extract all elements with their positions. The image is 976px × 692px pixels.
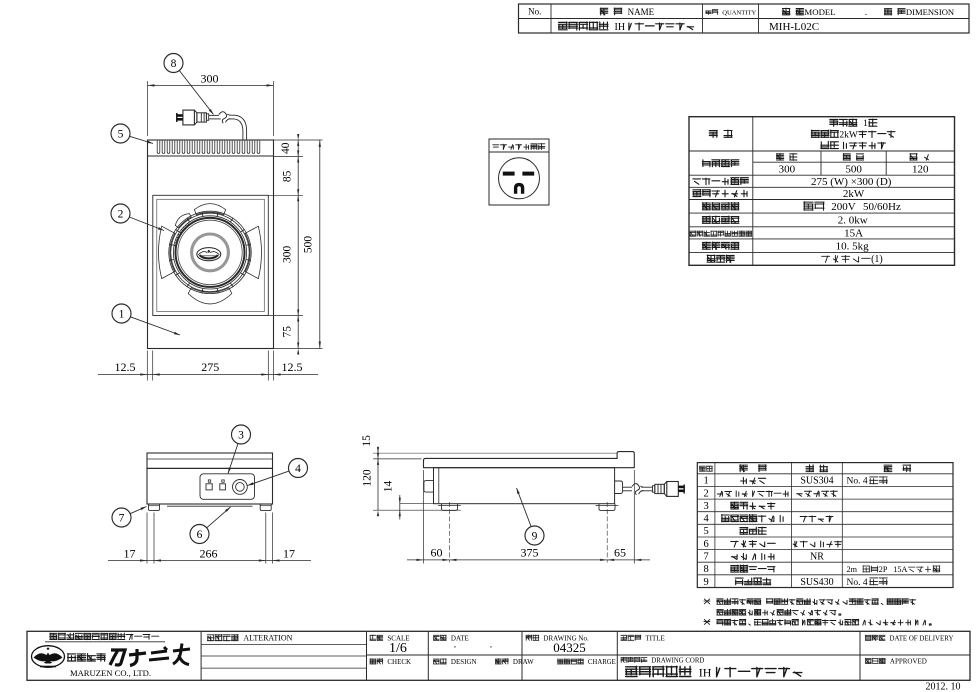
svg-text:7: 7	[119, 513, 125, 525]
svg-text:15A: 15A	[844, 227, 863, 239]
svg-text:IH: IH	[699, 666, 712, 680]
svg-text:15: 15	[361, 435, 373, 447]
svg-text:10. 5kg: 10. 5kg	[836, 240, 870, 252]
svg-text:17: 17	[283, 546, 295, 560]
svg-text:ALTERATION: ALTERATION	[243, 634, 292, 643]
svg-text:IH: IH	[615, 22, 626, 33]
svg-text:DIMENSION: DIMENSION	[906, 7, 955, 17]
svg-text:1: 1	[119, 309, 125, 321]
svg-text:2kW: 2kW	[843, 188, 865, 200]
svg-text:2: 2	[118, 209, 124, 221]
svg-text:8: 8	[703, 564, 708, 575]
svg-text:(1): (1)	[871, 254, 883, 265]
svg-text:40: 40	[280, 142, 292, 154]
svg-text:5: 5	[703, 526, 708, 537]
svg-text:300: 300	[282, 246, 294, 264]
svg-text:9: 9	[532, 531, 538, 543]
svg-text:2012. 10: 2012. 10	[926, 682, 961, 692]
svg-text:2m: 2m	[847, 565, 858, 574]
svg-text:2. 0kw: 2. 0kw	[838, 215, 868, 227]
svg-text:QUANTITY: QUANTITY	[722, 10, 756, 17]
svg-text:.: .	[865, 7, 867, 17]
svg-text:TITLE: TITLE	[645, 634, 664, 642]
svg-text:9: 9	[703, 577, 708, 588]
svg-text:4: 4	[295, 463, 301, 475]
svg-text:No.: No.	[528, 7, 541, 17]
svg-text:50/60Hz: 50/60Hz	[863, 201, 901, 213]
svg-text:300: 300	[201, 71, 219, 85]
svg-text:500: 500	[303, 236, 315, 254]
svg-text:NAME: NAME	[628, 7, 655, 17]
svg-text:·: ·	[453, 642, 457, 654]
svg-text:2kW: 2kW	[839, 130, 858, 140]
svg-text:275 (W) ×300 (D): 275 (W) ×300 (D)	[811, 176, 892, 188]
svg-text:300: 300	[779, 163, 796, 175]
svg-text:5: 5	[118, 129, 124, 141]
svg-text:CHARGE: CHARGE	[588, 659, 616, 666]
svg-text:8: 8	[171, 58, 177, 70]
svg-text:120: 120	[362, 469, 374, 487]
svg-text:266: 266	[200, 546, 218, 560]
svg-text:3: 3	[238, 430, 244, 442]
svg-text:2P: 2P	[879, 565, 888, 574]
svg-text:6: 6	[703, 539, 708, 550]
svg-text:12.5: 12.5	[282, 360, 303, 374]
svg-text:200V: 200V	[831, 201, 856, 213]
svg-text:No. 4: No. 4	[847, 477, 868, 487]
svg-text:1/6: 1/6	[389, 641, 407, 656]
svg-text:2: 2	[703, 488, 708, 499]
svg-text:375: 375	[521, 546, 539, 560]
svg-text:DRAW: DRAW	[513, 658, 534, 666]
svg-text:7: 7	[703, 552, 708, 563]
svg-text:1: 1	[703, 476, 708, 487]
svg-text:MODEL: MODEL	[804, 7, 835, 17]
svg-text:DATE OF DELIVERY: DATE OF DELIVERY	[890, 635, 954, 642]
svg-text:85: 85	[282, 170, 294, 182]
svg-text:No. 4: No. 4	[847, 578, 868, 588]
svg-text:65: 65	[614, 546, 626, 560]
svg-text:·: ·	[489, 642, 493, 654]
svg-text:MIH-L02C: MIH-L02C	[769, 21, 819, 33]
svg-text:60: 60	[431, 546, 443, 560]
svg-text:CHECK: CHECK	[387, 658, 411, 666]
svg-text:04325: 04325	[553, 640, 586, 655]
svg-text:75: 75	[282, 326, 294, 338]
svg-text:1: 1	[863, 119, 868, 129]
svg-text:275: 275	[201, 360, 219, 374]
svg-text:15A: 15A	[893, 565, 907, 574]
svg-text:4: 4	[703, 514, 709, 525]
svg-text:14: 14	[383, 481, 395, 493]
svg-text:500: 500	[845, 163, 862, 175]
svg-text:APPROVED: APPROVED	[890, 658, 927, 666]
svg-text:DRAWING CORD: DRAWING CORD	[651, 658, 704, 665]
svg-text:3: 3	[703, 501, 708, 512]
svg-text:MARUZEN CO., LTD.: MARUZEN CO., LTD.	[70, 668, 151, 678]
svg-text:SUS304: SUS304	[800, 476, 833, 487]
svg-text:12.5: 12.5	[115, 360, 136, 374]
svg-text:6: 6	[197, 529, 203, 541]
svg-text:SUS430: SUS430	[800, 577, 833, 588]
svg-text:120: 120	[912, 163, 929, 175]
svg-text:NR: NR	[810, 552, 824, 563]
svg-text:17: 17	[124, 546, 136, 560]
svg-text:DESIGN: DESIGN	[451, 658, 477, 666]
